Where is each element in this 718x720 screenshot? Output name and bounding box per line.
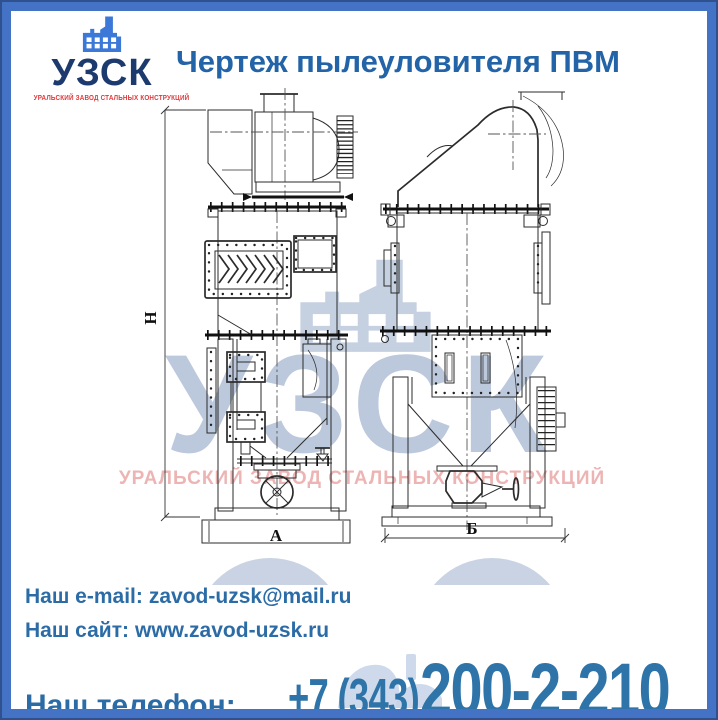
page: УЗСК УРАЛЬСКИЙ ЗАВОД СТАЛЬНЫХ КОНСТРУКЦИ… <box>0 0 718 720</box>
width-b-dimension: Б <box>381 519 569 543</box>
width-a-dimension: А <box>270 526 283 545</box>
height-dim-label: Н <box>141 311 160 324</box>
phone-label: Наш телефон: <box>25 691 236 720</box>
width-b-label: Б <box>466 519 477 538</box>
page-title: Чертеж пылеуловителя ПВМ <box>176 44 620 80</box>
logo-name: УЗСК <box>26 54 178 92</box>
email-value: zavod-uzsk@mail.ru <box>149 585 352 608</box>
watermark-layer: УЗСК УРАЛЬСКИЙ ЗАВОД СТАЛЬНЫХ КОНСТРУКЦИ… <box>119 260 605 585</box>
email-line: Наш e-mail:zavod-uzsk@mail.ru <box>25 585 688 609</box>
phone-area-code: +7 (343) <box>288 672 419 720</box>
inlet-opening <box>294 236 336 272</box>
site-line: Наш сайт:www.zavod-uzsk.ru <box>25 619 688 643</box>
email-label: Наш e-mail: <box>25 585 143 608</box>
company-logo: УЗСК УРАЛЬСКИЙ ЗАВОД СТАЛЬНЫХ КОНСТРУКЦИ… <box>26 12 178 102</box>
technical-drawing: УЗСК УРАЛЬСКИЙ ЗАВОД СТАЛЬНЫХ КОНСТРУКЦИ… <box>0 80 718 585</box>
factory-icon <box>79 12 125 52</box>
logo-subtitle: УРАЛЬСКИЙ ЗАВОД СТАЛЬНЫХ КОНСТРУКЦИЙ <box>34 95 171 102</box>
site-value: www.zavod-uzsk.ru <box>135 619 329 642</box>
phone-number: 200-2-210 <box>420 653 669 720</box>
fan-scroll-top <box>398 92 565 207</box>
dome-watermark <box>416 558 568 585</box>
phone-line: Наш телефон: +7 (343) 200-2-210 <box>25 653 688 720</box>
uzsk-watermark-text: УЗСК <box>165 325 555 482</box>
width-a-label: А <box>270 526 283 545</box>
contacts-block: Наш e-mail:zavod-uzsk@mail.ru Наш сайт:w… <box>25 585 688 720</box>
uzsk-watermark-subtext: УРАЛЬСКИЙ ЗАВОД СТАЛЬНЫХ КОНСТРУКЦИЙ <box>119 467 605 489</box>
upper-flange-side <box>381 204 550 227</box>
site-label: Наш сайт: <box>25 619 129 642</box>
fan-unit <box>208 88 358 201</box>
dome-watermark <box>194 558 346 585</box>
